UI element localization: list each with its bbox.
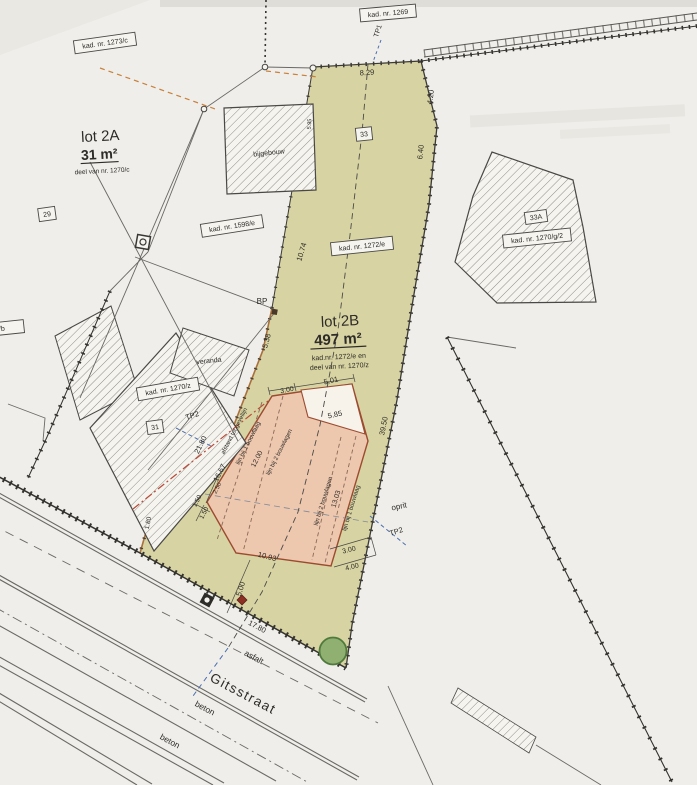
cadastral-plan: kad. nr. 1273/c kad. nr. 1269 kad. nr. 1… <box>0 0 697 785</box>
dim-text: 5.95 <box>307 119 314 130</box>
house-number-text: 31 <box>151 424 160 432</box>
lot2a-title-block: lot 2A 31 m² deel van nr. 1270/c <box>72 127 130 177</box>
bp-marker <box>271 309 277 315</box>
orange-boundary-dashed <box>100 68 218 110</box>
survey-point <box>310 65 316 71</box>
dim-text: 8.29 <box>359 68 374 78</box>
culvert-strip <box>451 688 536 753</box>
oprit-label: oprit <box>391 500 409 512</box>
house-number-29: 29 <box>38 206 57 221</box>
lot2a-area: 31 m² <box>81 145 119 163</box>
beton-label: beton <box>193 699 217 718</box>
tp2-label: TP2 <box>388 525 404 538</box>
lot2b-title: lot 2B <box>320 312 359 331</box>
utility-box-icon <box>135 234 150 249</box>
building-33a <box>455 152 596 303</box>
kad-label-1598e: kad. nr. 1598/e <box>200 215 263 238</box>
lot2a-note: deel van nr. 1270/c <box>75 166 131 176</box>
house-number-text: 29 <box>43 211 52 219</box>
house-number-33: 33 <box>355 127 372 142</box>
house-number-33a: 33A <box>524 210 547 225</box>
tree-icon <box>320 638 347 665</box>
house-number-text: 33 <box>360 131 369 139</box>
survey-point <box>262 64 268 70</box>
house-number-31: 31 <box>146 419 164 434</box>
dim-text: 6.40 <box>415 144 425 159</box>
street-name-label: Gitsstraat <box>208 670 279 717</box>
dim-text: 4.20 <box>425 89 436 105</box>
tp1-label: TP1 <box>373 24 384 38</box>
lot2a-title: lot 2A <box>81 127 120 146</box>
kad-label-clipped: 2/e2/b <box>0 320 25 339</box>
survey-point <box>201 106 207 112</box>
boundary-marker-icon <box>200 593 215 608</box>
bp-label: BP <box>257 297 268 306</box>
survey-plan-photo: kad. nr. 1273/c kad. nr. 1269 kad. nr. 1… <box>0 0 697 785</box>
street-texts: asfalt Gitsstraat beton beton <box>158 648 279 751</box>
railway-symbol <box>424 13 697 57</box>
kad-label-1273c: kad. nr. 1273/c <box>73 32 136 54</box>
